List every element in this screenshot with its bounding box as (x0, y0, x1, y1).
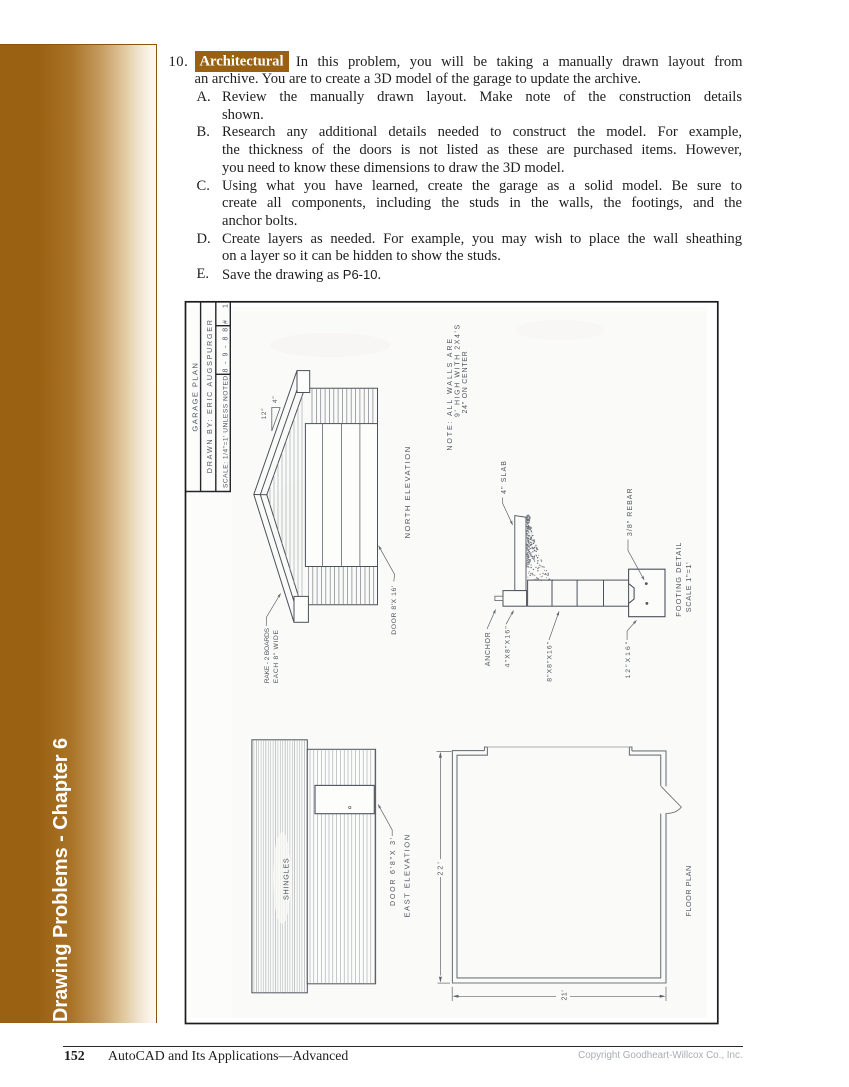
svg-text:SCALE 1"=1': SCALE 1"=1' (684, 562, 693, 613)
svg-text:4"X8"X16": 4"X8"X16" (505, 625, 512, 667)
svg-text:8"X8"X16": 8"X8"X16" (547, 641, 554, 682)
svg-text:NOTE: ALL WALLS ARE: NOTE: ALL WALLS ARE (447, 338, 454, 451)
svg-text:# 1: # 1 (222, 303, 229, 324)
svg-text:DOOR 6'8"X 3': DOOR 6'8"X 3' (390, 837, 397, 906)
svg-text:SHINGLES: SHINGLES (282, 858, 291, 901)
svg-text:24" ON CENTER: 24" ON CENTER (462, 351, 469, 414)
svg-text:DOOR 8'X 16': DOOR 8'X 16' (391, 585, 398, 635)
svg-text:FOOTING DETAIL: FOOTING DETAIL (674, 542, 683, 617)
svg-text:4": 4" (272, 396, 279, 403)
svg-text:EAST ELEVATION: EAST ELEVATION (403, 834, 412, 918)
svg-text:FLOOR PLAN: FLOOR PLAN (684, 865, 693, 917)
svg-text:ANCHOR: ANCHOR (485, 632, 492, 667)
svg-text:21': 21' (562, 990, 569, 1001)
svg-text:SCALE: 1/4"=1' UNLESS NOTED: SCALE: 1/4"=1' UNLESS NOTED (222, 375, 229, 488)
svg-text:12": 12" (261, 408, 268, 420)
svg-text:EACH 8" WIDE: EACH 8" WIDE (273, 629, 280, 683)
svg-text:12"X16": 12"X16" (625, 641, 632, 679)
svg-text:3/8" REBAR: 3/8" REBAR (627, 488, 634, 537)
svg-text:NORTH ELEVATION: NORTH ELEVATION (403, 446, 412, 539)
svg-text:4" SLAB: 4" SLAB (501, 460, 508, 494)
svg-text:DRAWN BY: ERIC AUGSPURGER: DRAWN BY: ERIC AUGSPURGER (205, 319, 214, 473)
svg-text:22': 22' (438, 862, 445, 876)
svg-text:RAKE - 2 BOARDS: RAKE - 2 BOARDS (264, 627, 271, 683)
svg-text:GARAGE PLAN: GARAGE PLAN (190, 362, 199, 431)
svg-text:9' HIGH WITH 2X4'S: 9' HIGH WITH 2X4'S (455, 324, 462, 417)
